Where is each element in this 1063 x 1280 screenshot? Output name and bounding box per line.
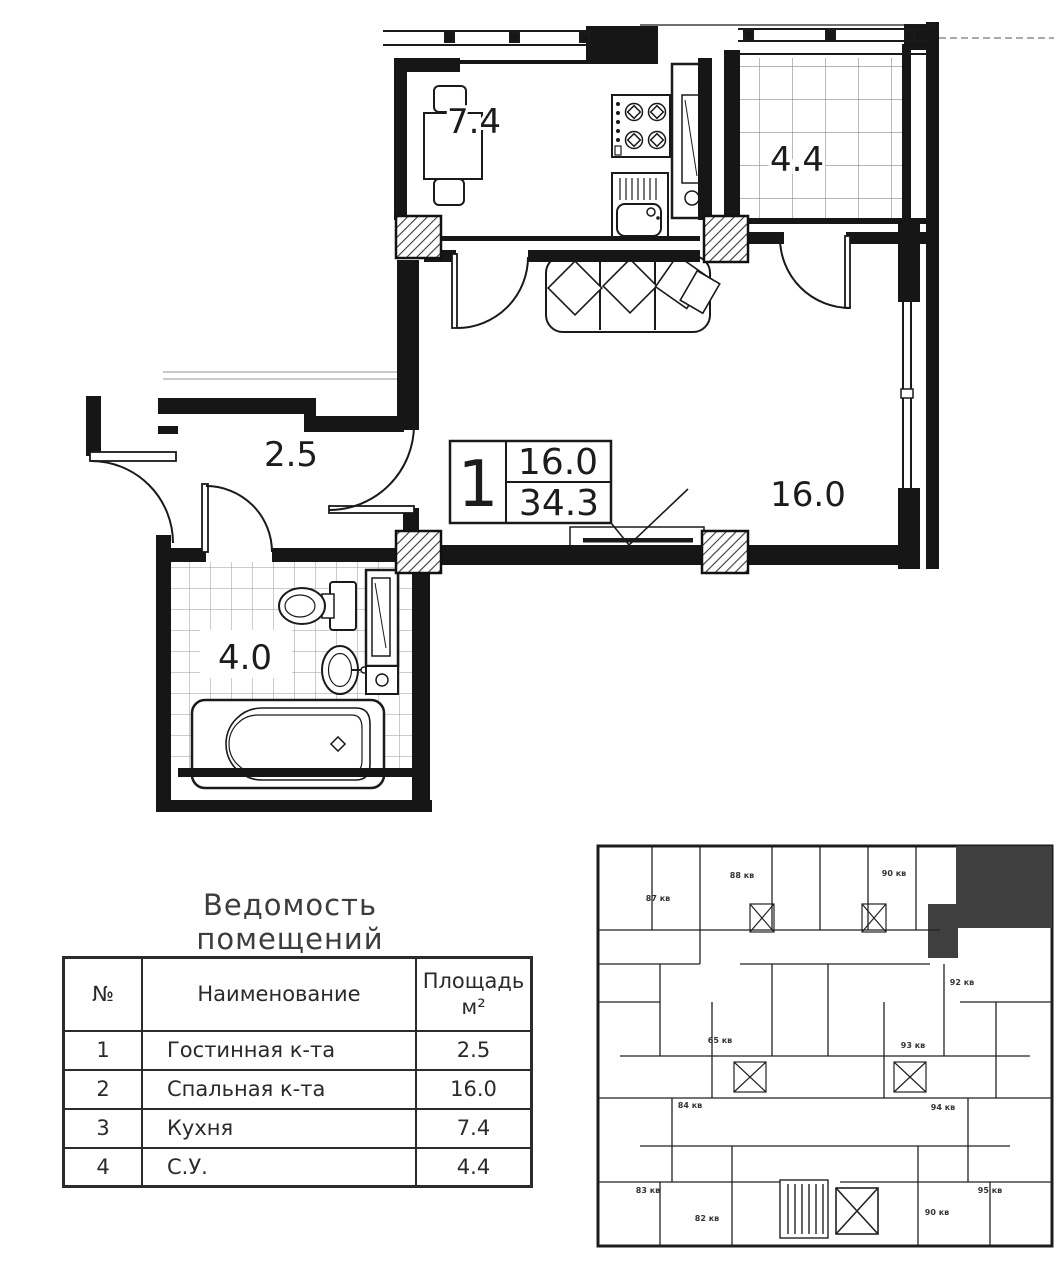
column-header-area: Площадь м²: [416, 958, 532, 1031]
bathroom-area-label: 4.0: [218, 638, 272, 678]
row-number: 3: [64, 1109, 143, 1148]
keyplan-unit-label: 94 кв: [931, 1103, 955, 1112]
kitchen-area-label: 7.4: [447, 102, 501, 142]
balcony-floor-grid: [740, 58, 902, 218]
living-area-label: 16.0: [770, 475, 846, 515]
towel-cabinet: [366, 570, 398, 694]
room-schedule-table: № Наименование Площадь м² 1 Гостинная к-…: [62, 956, 533, 1188]
highlighted-unit: [956, 846, 1052, 928]
keyplan-unit-label: 90 кв: [882, 869, 906, 878]
row-name: С.У.: [142, 1148, 416, 1187]
keyplan-unit-label: 88 кв: [730, 871, 754, 880]
table-row: 4 С.У. 4.4: [64, 1148, 532, 1187]
table-row: 3 Кухня 7.4: [64, 1109, 532, 1148]
kitchen-sink: [612, 173, 668, 239]
apartment-plan: 1 16.0 34.3 7.4 4.4 2.5 16.0 4.0: [86, 22, 1054, 812]
keyplan-unit-label: 83 кв: [636, 1186, 660, 1195]
info-living-area: 16.0: [518, 442, 598, 483]
row-area: 2.5: [416, 1031, 532, 1070]
row-name: Кухня: [142, 1109, 416, 1148]
hallway-area-label: 2.5: [264, 435, 318, 475]
column-header-name: Наименование: [142, 958, 416, 1031]
info-rooms-count: 1: [458, 448, 499, 522]
highlighted-unit-part: [928, 904, 958, 958]
keyplan-unit-label: 92 кв: [950, 978, 974, 987]
row-name: Гостинная к-та: [142, 1031, 416, 1070]
keyplan-unit-label: 87 кв: [646, 894, 670, 903]
keyplan-unit-label: 65 кв: [708, 1036, 732, 1045]
column-header-area-line1: Площадь: [418, 968, 529, 994]
row-area: 16.0: [416, 1070, 532, 1109]
room-schedule: № Наименование Площадь м² 1 Гостинная к-…: [62, 956, 517, 1188]
stove: [612, 95, 670, 157]
row-area: 7.4: [416, 1109, 532, 1148]
keyplan-unit-label: 95 кв: [978, 1186, 1002, 1195]
table-row: 2 Спальная к-та 16.0: [64, 1070, 532, 1109]
sofa: [546, 256, 720, 332]
row-number: 2: [64, 1070, 143, 1109]
schedule-title: Ведомость помещений: [110, 888, 470, 956]
keyplan-unit-label: 90 кв: [925, 1208, 949, 1217]
row-number: 4: [64, 1148, 143, 1187]
balcony-area-label: 4.4: [770, 140, 824, 180]
row-area: 4.4: [416, 1148, 532, 1187]
row-number: 1: [64, 1031, 143, 1070]
table-row: 1 Гостинная к-та 2.5: [64, 1031, 532, 1070]
row-name: Спальная к-та: [142, 1070, 416, 1109]
keyplan-unit-label: 82 кв: [695, 1214, 719, 1223]
building-key-plan: 87 кв 88 кв 90 кв 92 кв 65 кв 93 кв 84 к…: [598, 846, 1052, 1246]
keyplan-unit-label: 84 кв: [678, 1101, 702, 1110]
column-header-area-line2: м²: [418, 994, 529, 1020]
info-total-area: 34.3: [519, 483, 599, 524]
table-header-row: № Наименование Площадь м²: [64, 958, 532, 1031]
keyplan-unit-label: 93 кв: [901, 1041, 925, 1050]
floorplan-scan-page: 1 16.0 34.3 7.4 4.4 2.5 16.0 4.0: [0, 0, 1063, 1280]
column-header-number: №: [64, 958, 143, 1031]
